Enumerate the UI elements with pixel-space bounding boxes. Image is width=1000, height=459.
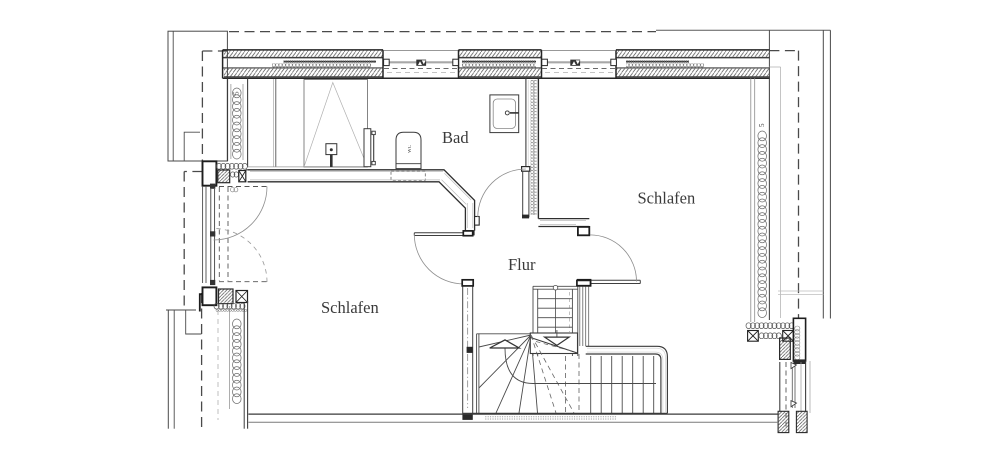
svg-text:Flur: Flur bbox=[508, 255, 536, 274]
svg-text:5: 5 bbox=[758, 123, 766, 127]
svg-text:5: 5 bbox=[233, 91, 241, 95]
svg-text:Schlafen: Schlafen bbox=[638, 189, 696, 208]
svg-text:Bad: Bad bbox=[442, 128, 469, 147]
svg-text:WC: WC bbox=[408, 144, 413, 153]
svg-text:Schlafen: Schlafen bbox=[321, 298, 379, 317]
